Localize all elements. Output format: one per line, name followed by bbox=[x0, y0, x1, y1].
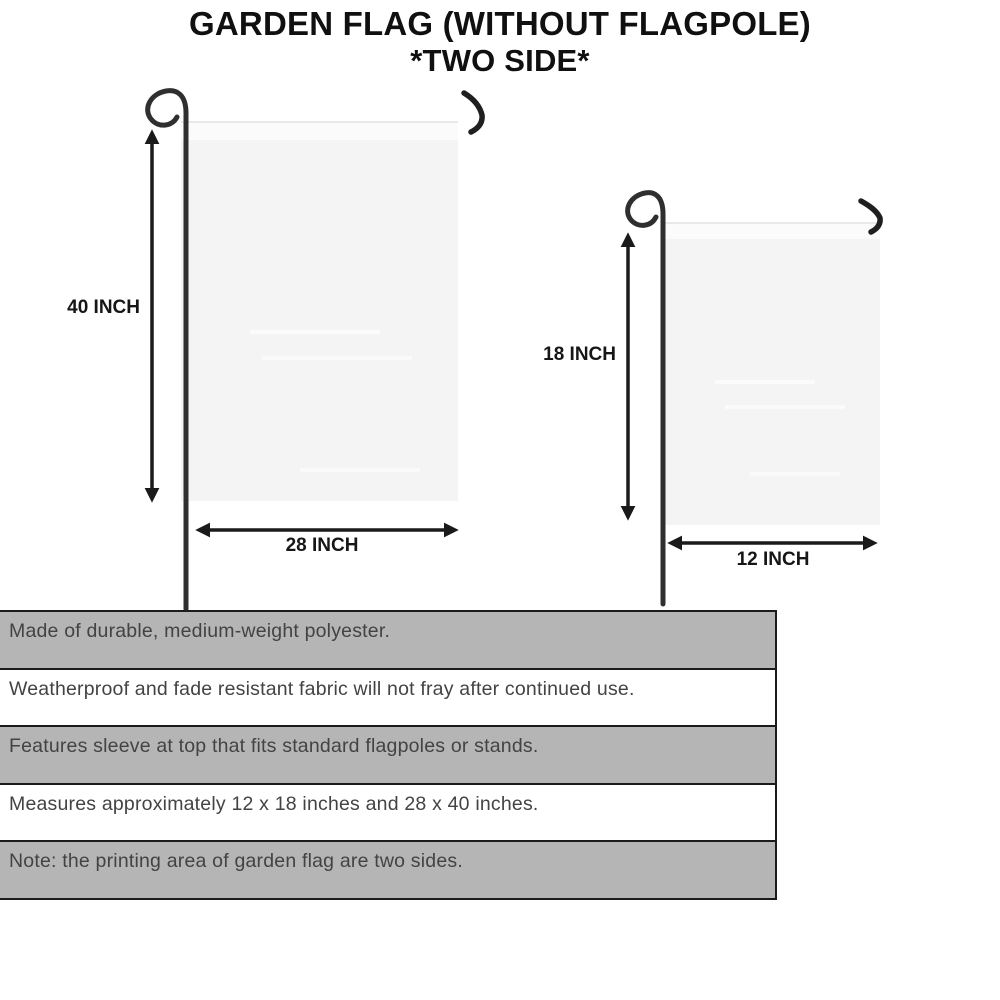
small-flag-group bbox=[628, 193, 880, 604]
flag-crease bbox=[725, 405, 845, 409]
small-flag-height-label: 18 INCH bbox=[526, 344, 616, 366]
feature-text: Note: the printing area of garden flag a… bbox=[9, 850, 463, 872]
small-flag-sleeve bbox=[663, 223, 880, 239]
garden-flag-infographic: GARDEN FLAG (WITHOUT FLAGPOLE) *TWO SIDE… bbox=[0, 0, 1000, 1000]
small-flag-width-label: 12 INCH bbox=[713, 549, 833, 571]
feature-row: Made of durable, medium-weight polyester… bbox=[0, 610, 775, 668]
large-flag-hook-icon bbox=[464, 93, 482, 132]
large-flag-sleeve bbox=[181, 122, 458, 140]
large-flag-group bbox=[148, 91, 482, 609]
feature-row: Measures approximately 12 x 18 inches an… bbox=[0, 783, 775, 841]
feature-list: Made of durable, medium-weight polyester… bbox=[0, 610, 777, 900]
flag-crease bbox=[262, 356, 412, 360]
large-flag-width-label: 28 INCH bbox=[262, 535, 382, 557]
flag-crease bbox=[300, 468, 420, 472]
flag-crease bbox=[250, 330, 380, 334]
feature-text: Measures approximately 12 x 18 inches an… bbox=[9, 793, 539, 815]
feature-row: Weatherproof and fade resistant fabric w… bbox=[0, 668, 775, 726]
large-flag-height-label: 40 INCH bbox=[50, 297, 140, 319]
flag-crease bbox=[715, 380, 815, 384]
small-flag-pole bbox=[628, 193, 663, 604]
feature-text: Made of durable, medium-weight polyester… bbox=[9, 620, 390, 642]
feature-row: Features sleeve at top that fits standar… bbox=[0, 725, 775, 783]
feature-text: Features sleeve at top that fits standar… bbox=[9, 735, 538, 757]
large-flag bbox=[181, 122, 458, 501]
feature-row: Note: the printing area of garden flag a… bbox=[0, 840, 775, 898]
small-flag bbox=[663, 223, 880, 525]
flag-crease bbox=[750, 472, 840, 476]
feature-text: Weatherproof and fade resistant fabric w… bbox=[9, 678, 635, 700]
